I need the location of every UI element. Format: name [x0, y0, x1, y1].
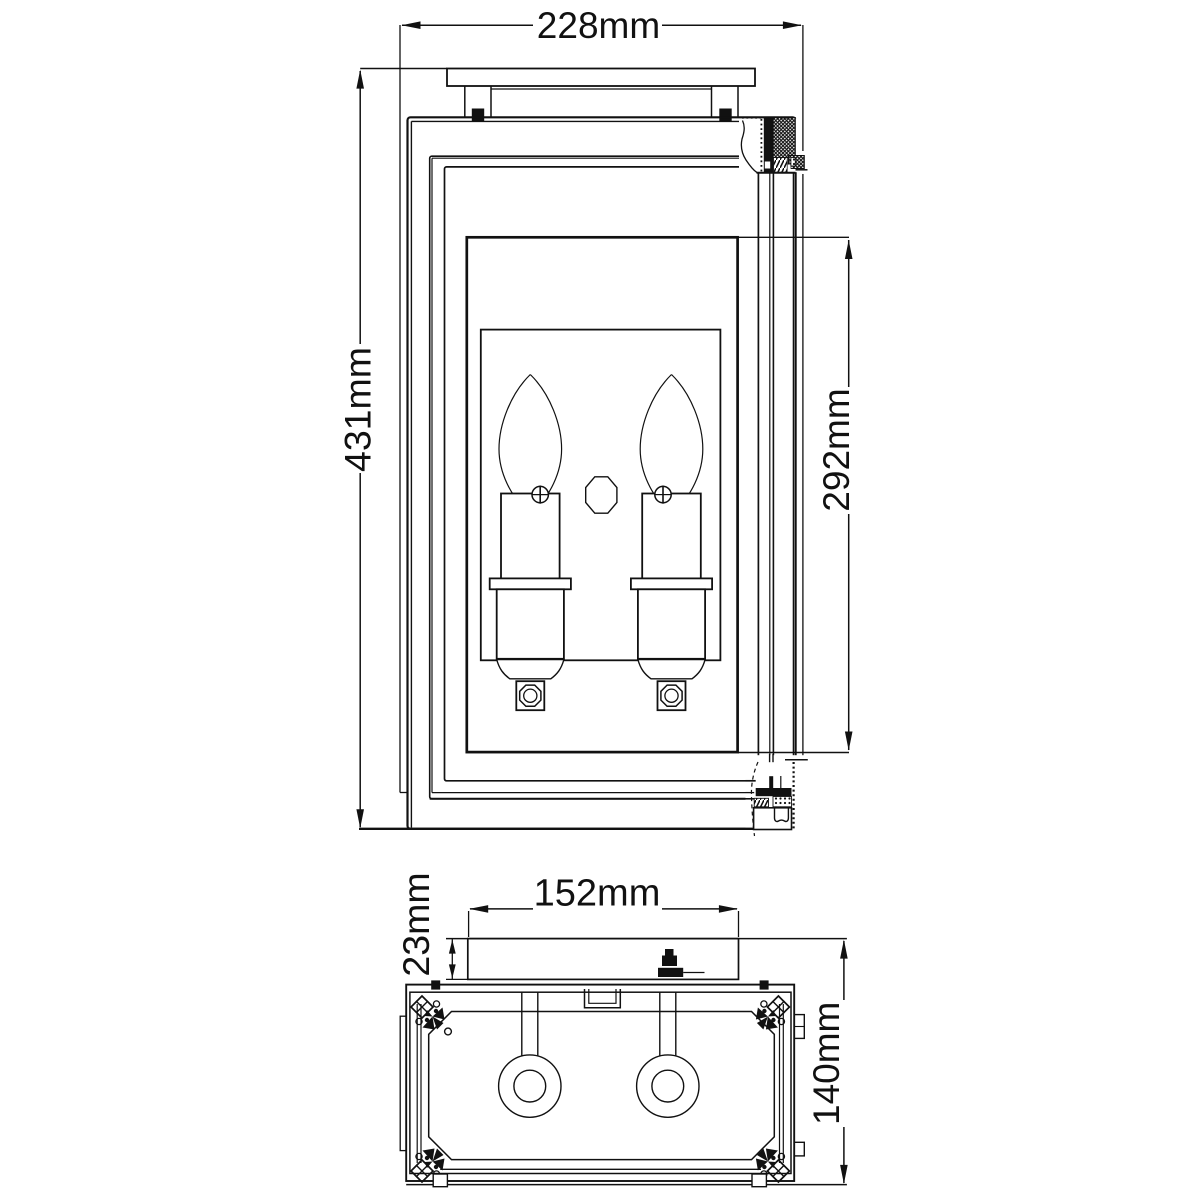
- svg-text:431mm: 431mm: [337, 347, 379, 472]
- svg-text:152mm: 152mm: [534, 873, 661, 915]
- svg-text:292mm: 292mm: [816, 388, 857, 511]
- svg-text:228mm: 228mm: [537, 5, 660, 46]
- svg-text:23mm: 23mm: [395, 872, 437, 976]
- svg-text:140mm: 140mm: [806, 1002, 847, 1125]
